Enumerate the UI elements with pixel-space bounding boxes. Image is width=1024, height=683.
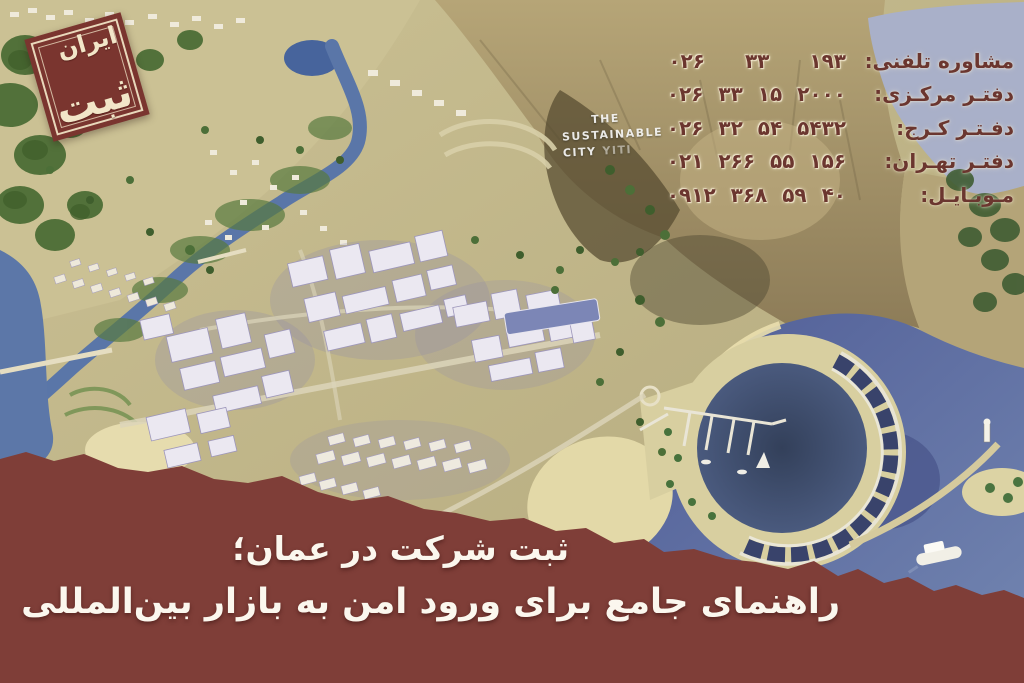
contact-number-consult: ۰۲۶ ۳۳ ۱۹۳ bbox=[642, 45, 862, 78]
promo-poster: THE SUSTAINABLE CITYYITI ایران ثبت مشاور… bbox=[0, 0, 1024, 683]
contact-label-mobile: مـوبـایـل: bbox=[862, 179, 1014, 212]
contact-row-head-office: دفتـر مرکـزی: ۰۲۶ ۳۳ ۱۵ ۲۰۰۰ bbox=[642, 78, 1014, 111]
contact-label-karaj-office: دفـتـر کـرج: bbox=[862, 112, 1014, 145]
contact-number-mobile: ۰۹۱۲ ۳۶۸ ۵۹ ۴۰ bbox=[642, 179, 862, 212]
contact-row-consult: مشاوره تلفنی: ۰۲۶ ۳۳ ۱۹۳ bbox=[642, 45, 1014, 78]
contact-label-tehran-office: دفتـر تهـران: bbox=[862, 145, 1014, 178]
contact-label-consult: مشاوره تلفنی: bbox=[862, 45, 1014, 78]
contact-number-tehran-office: ۰۲۱ ۲۶۶ ۵۵ ۱۵۶ bbox=[642, 145, 862, 178]
banner-title: ثبت شرکت در عمان؛ bbox=[232, 529, 569, 568]
contact-number-karaj-office: ۰۲۶ ۳۲ ۵۴ ۵۴۳۲ bbox=[642, 112, 862, 145]
banner-subtitle: راهنمای جامع برای ورود امن به بازار بین‌… bbox=[21, 582, 840, 622]
contact-row-mobile: مـوبـایـل: ۰۹۱۲ ۳۶۸ ۵۹ ۴۰ bbox=[642, 179, 1014, 212]
contact-number-head-office: ۰۲۶ ۳۳ ۱۵ ۲۰۰۰ bbox=[642, 78, 862, 111]
contact-row-karaj-office: دفـتـر کـرج: ۰۲۶ ۳۲ ۵۴ ۵۴۳۲ bbox=[642, 112, 1014, 145]
contact-info-block: مشاوره تلفنی: ۰۲۶ ۳۳ ۱۹۳ دفتـر مرکـزی: ۰… bbox=[642, 45, 1014, 212]
contact-label-head-office: دفتـر مرکـزی: bbox=[862, 78, 1014, 111]
contact-row-tehran-office: دفتـر تهـران: ۰۲۱ ۲۶۶ ۵۵ ۱۵۶ bbox=[642, 145, 1014, 178]
